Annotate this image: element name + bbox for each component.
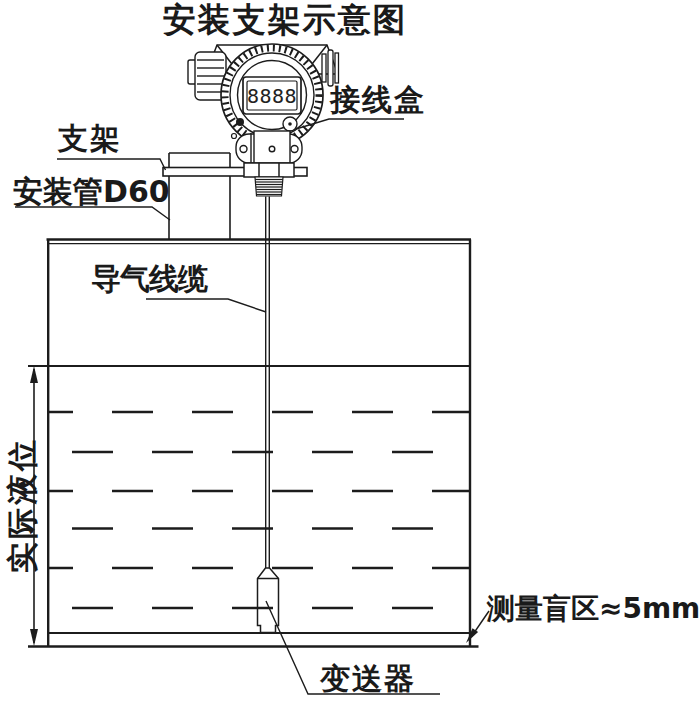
lcd-digits: 8888	[247, 84, 297, 108]
lower-housing-block	[254, 131, 290, 163]
transmitter-label: 变送器	[320, 662, 416, 695]
tank-outline	[28, 240, 479, 648]
lcd-display: 8888	[243, 77, 301, 114]
mounting-pipe	[169, 153, 230, 240]
actual-level-label: 实际液位	[5, 420, 41, 590]
side-connector	[322, 50, 339, 86]
nut-body	[244, 163, 294, 177]
air-cable-label: 导气线缆	[91, 262, 207, 295]
mounting-pipe-label: 安装管D60	[13, 175, 170, 208]
hex-nut	[244, 163, 294, 177]
connector-rib	[322, 54, 326, 82]
bolt-ear-dot	[288, 122, 292, 126]
bolt-small	[232, 134, 237, 139]
bracket-leader	[57, 159, 166, 170]
diagram-canvas: 8888	[0, 0, 700, 708]
arrowhead-down	[30, 629, 38, 646]
bolt-left	[236, 118, 244, 126]
junction-box-label: 接线盒	[330, 83, 426, 116]
diagram-title: 安装支架示意图	[125, 2, 445, 38]
head-lower-housing	[236, 131, 302, 163]
connector-rib	[335, 53, 339, 83]
blind-zone-label: 测量盲区≈5mm	[487, 594, 700, 625]
air-guide-cable	[266, 197, 270, 569]
bracket-label: 支架	[58, 122, 122, 155]
arrowhead-up	[30, 366, 38, 383]
threaded-stub	[255, 177, 283, 196]
connector-rib	[328, 50, 333, 86]
air-cable-leader	[146, 299, 266, 312]
